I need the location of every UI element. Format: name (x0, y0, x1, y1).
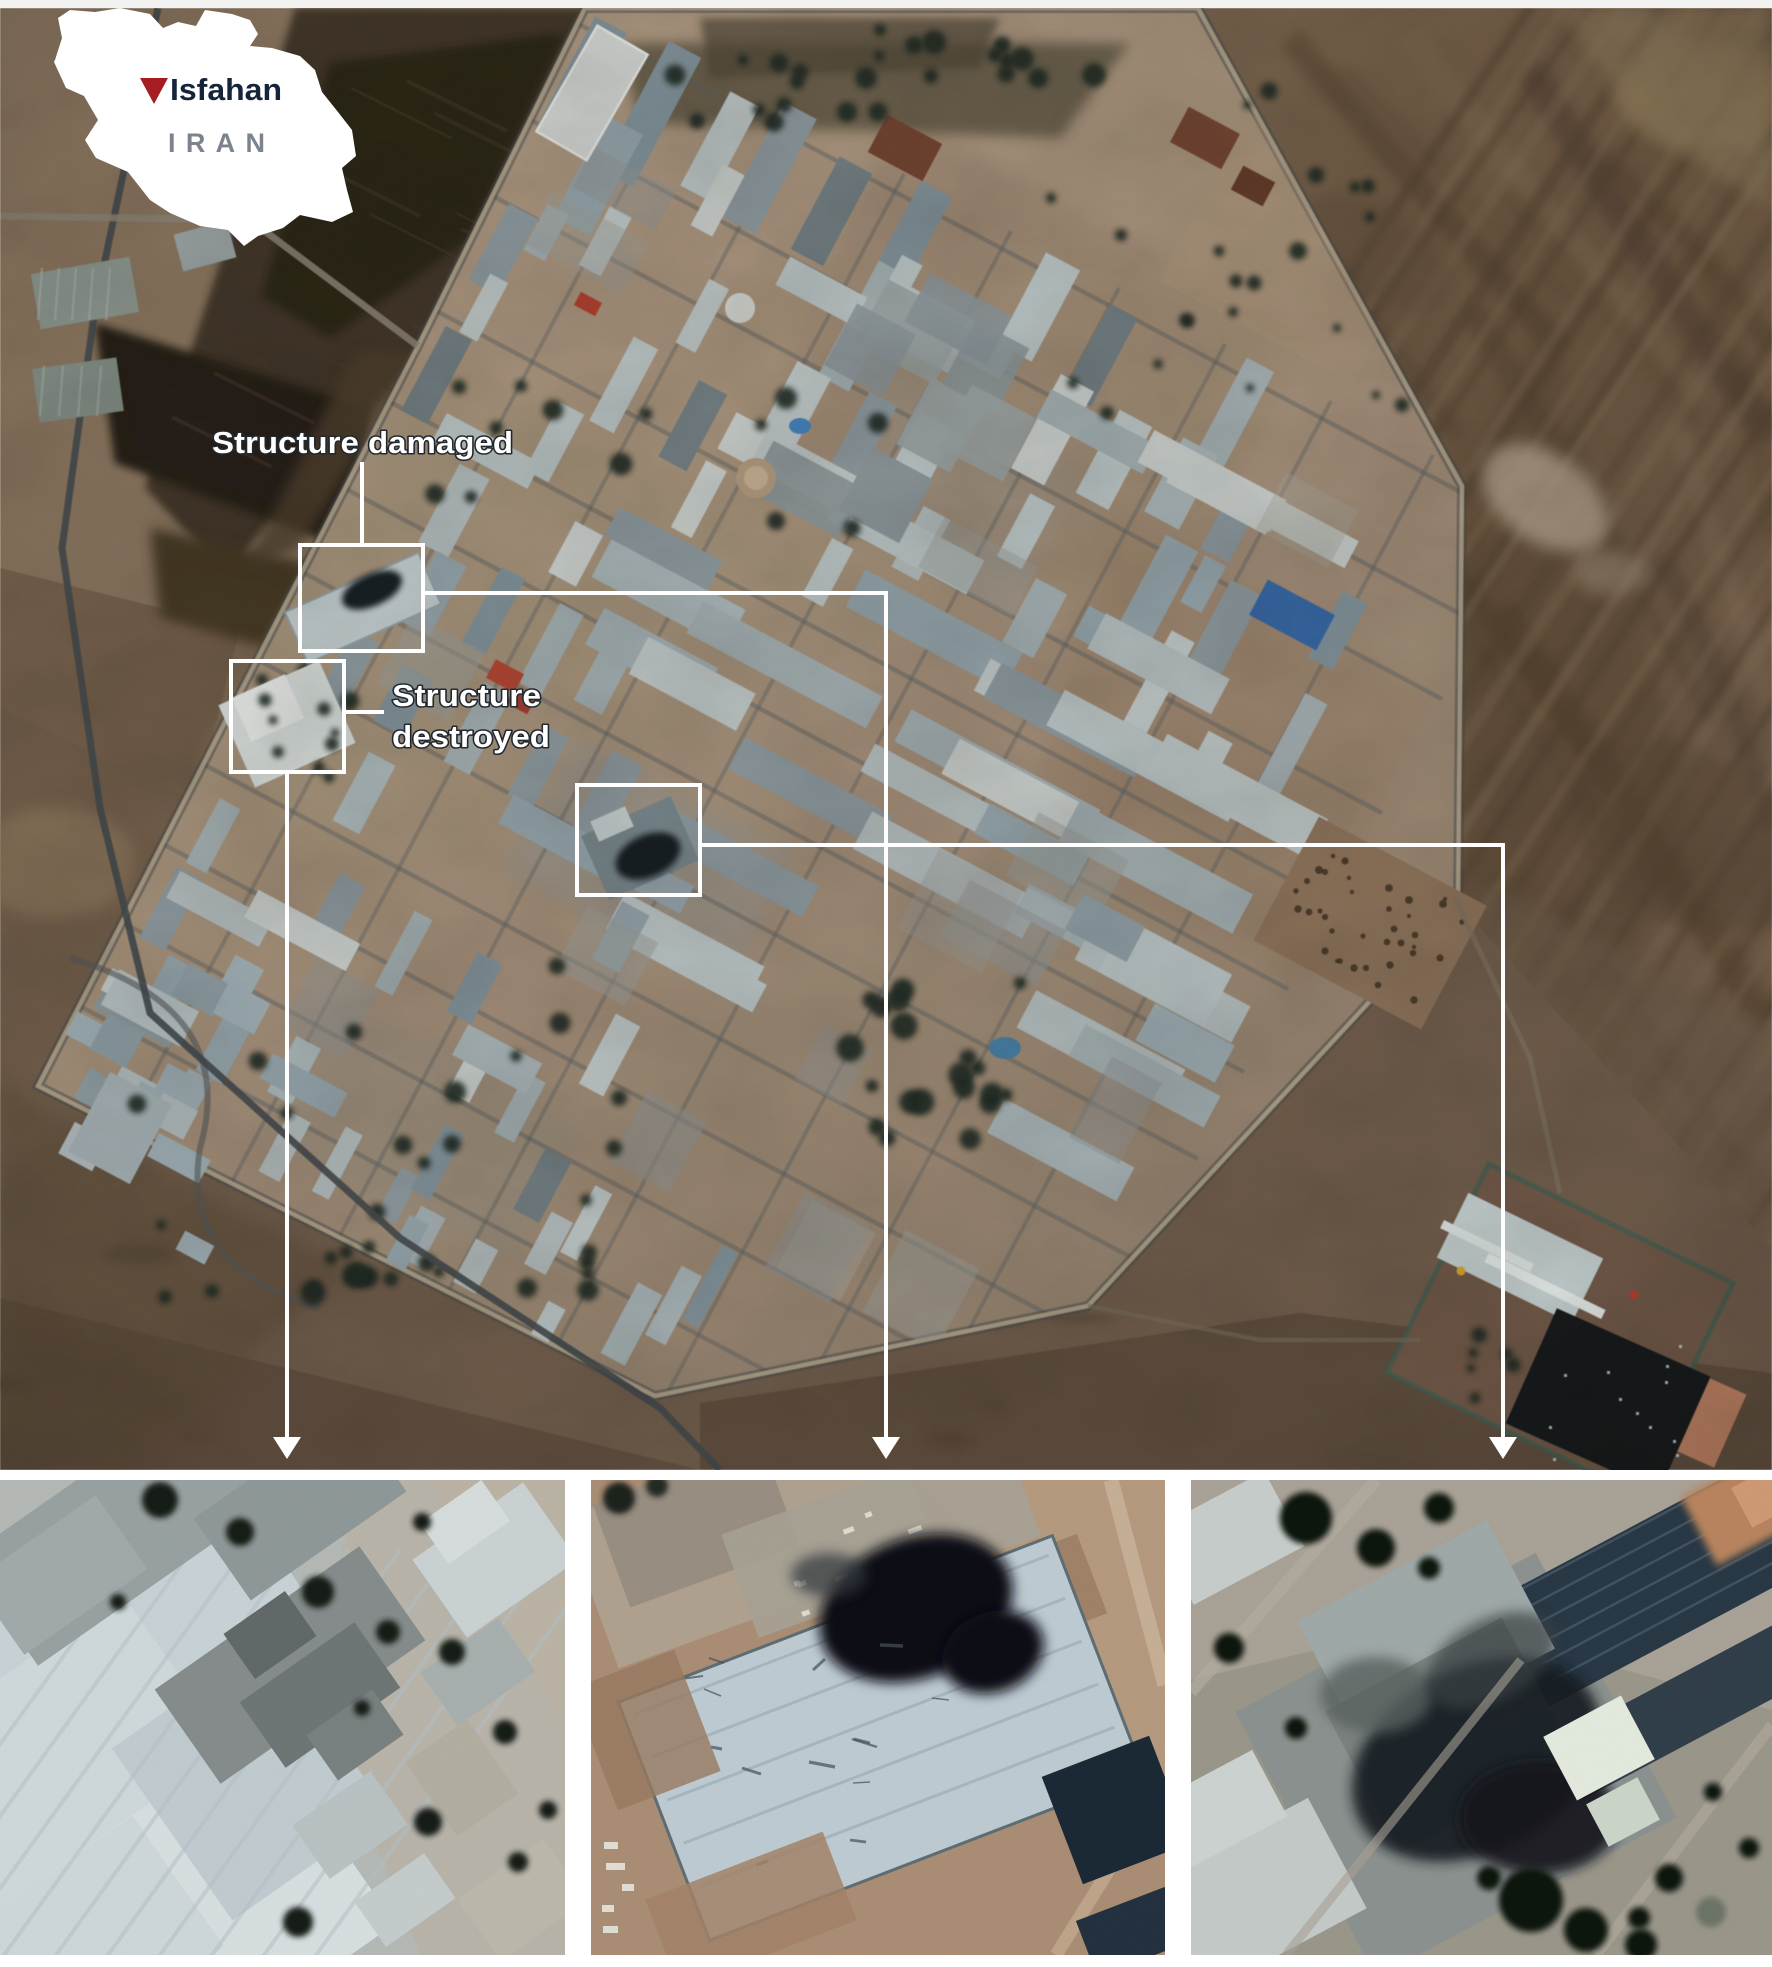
svg-text:Structure: Structure (392, 678, 541, 713)
svg-text:IRAN: IRAN (168, 128, 274, 158)
svg-text:destroyed: destroyed (392, 719, 550, 754)
svg-text:Isfahan: Isfahan (170, 72, 282, 107)
svg-text:Structure damaged: Structure damaged (212, 425, 513, 460)
